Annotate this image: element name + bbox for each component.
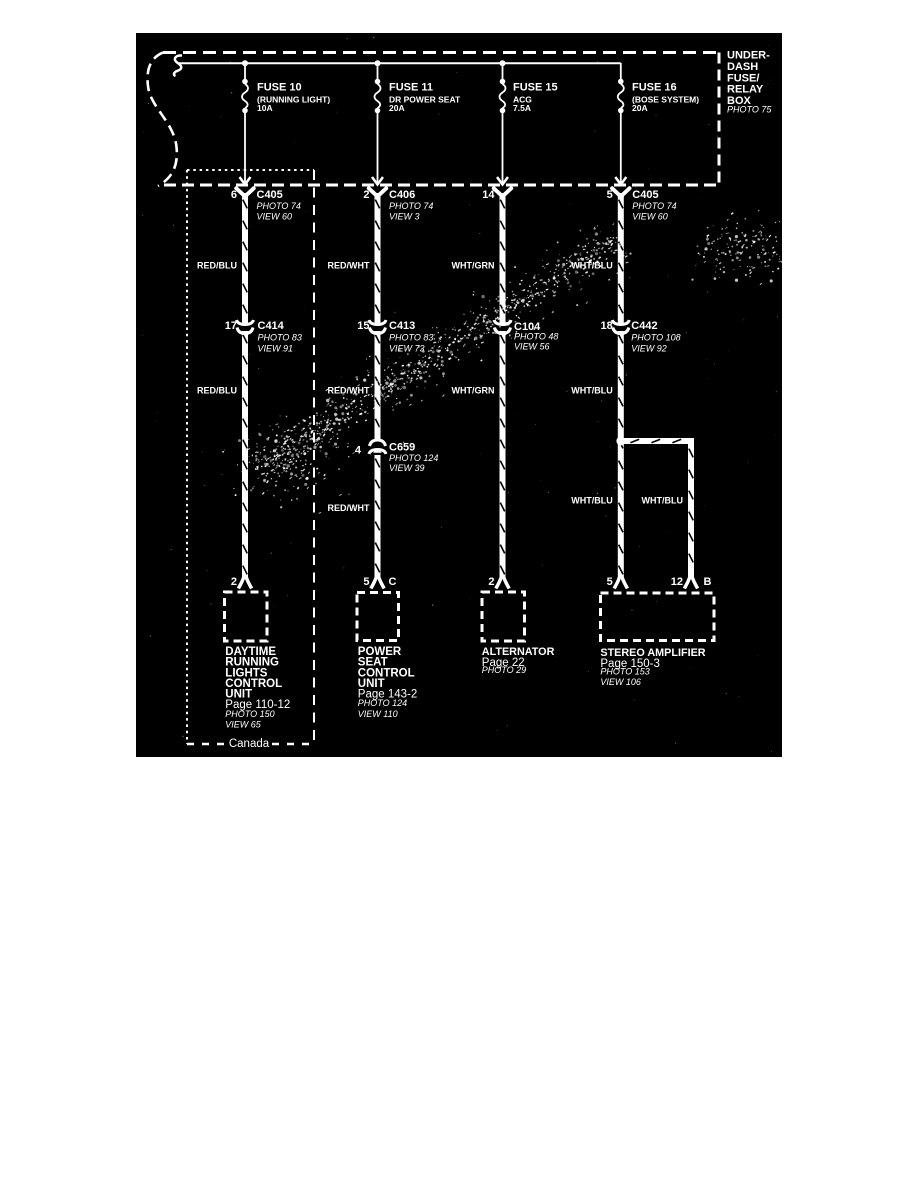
svg-text:PHOTO 83: PHOTO 83 (389, 332, 433, 342)
svg-text:VIEW 110: VIEW 110 (358, 709, 398, 719)
svg-text:2: 2 (488, 576, 494, 588)
svg-text:VIEW 60: VIEW 60 (257, 212, 293, 222)
svg-text:FUSE 10: FUSE 10 (257, 82, 302, 94)
svg-text:FUSE 15: FUSE 15 (513, 82, 558, 94)
svg-text:PHOTO 124: PHOTO 124 (358, 698, 407, 708)
svg-text:WHT/GRN: WHT/GRN (452, 261, 495, 271)
svg-text:VIEW 91: VIEW 91 (258, 343, 294, 353)
svg-text:Canada: Canada (229, 738, 270, 750)
svg-text:PHOTO 108: PHOTO 108 (631, 332, 680, 342)
svg-text:12: 12 (671, 576, 683, 588)
svg-text:WHT/GRN: WHT/GRN (452, 386, 495, 396)
svg-text:RED/WHT: RED/WHT (328, 261, 370, 271)
svg-text:C406: C406 (389, 189, 415, 201)
svg-text:PHOTO 150: PHOTO 150 (225, 709, 274, 719)
svg-text:18: 18 (601, 320, 613, 332)
svg-text:WHT/BLU: WHT/BLU (571, 386, 613, 396)
svg-text:C414: C414 (258, 320, 285, 332)
svg-text:VIEW 65: VIEW 65 (225, 719, 262, 729)
svg-text:RED/BLU: RED/BLU (197, 261, 237, 271)
svg-text:PHOTO 153: PHOTO 153 (600, 666, 649, 676)
svg-text:RED/BLU: RED/BLU (197, 386, 237, 396)
svg-text:20A: 20A (389, 103, 405, 113)
svg-text:15: 15 (357, 320, 369, 332)
svg-text:5: 5 (607, 576, 613, 588)
svg-text:RED/WHT: RED/WHT (328, 386, 370, 396)
svg-text:WHT/BLU: WHT/BLU (571, 261, 613, 271)
svg-text:10A: 10A (257, 103, 273, 113)
svg-text:5: 5 (363, 576, 369, 588)
svg-text:C: C (389, 576, 397, 588)
svg-text:WHT/BLU: WHT/BLU (571, 496, 613, 506)
svg-text:PHOTO 83: PHOTO 83 (258, 332, 302, 342)
svg-text:4: 4 (355, 445, 362, 457)
svg-text:FUSE 16: FUSE 16 (632, 82, 677, 94)
svg-text:17: 17 (225, 320, 237, 332)
svg-text:VIEW 3: VIEW 3 (389, 212, 420, 222)
svg-text:7.5A: 7.5A (513, 103, 531, 113)
svg-text:FUSE 11: FUSE 11 (389, 82, 433, 94)
svg-text:VIEW 92: VIEW 92 (631, 343, 667, 353)
svg-text:C405: C405 (632, 189, 658, 201)
svg-text:VIEW 106: VIEW 106 (600, 677, 641, 687)
svg-text:VIEW 73: VIEW 73 (389, 343, 425, 353)
svg-text:C659: C659 (389, 442, 415, 454)
svg-text:UNDER-: UNDER- (727, 50, 770, 62)
svg-text:6: 6 (231, 189, 237, 201)
svg-text:PHOTO 74: PHOTO 74 (632, 201, 676, 211)
svg-text:C405: C405 (257, 189, 283, 201)
svg-text:VIEW 56: VIEW 56 (514, 342, 550, 352)
svg-text:14: 14 (482, 189, 495, 201)
svg-text:DASH: DASH (727, 61, 758, 73)
svg-text:PHOTO 75: PHOTO 75 (727, 104, 772, 114)
svg-text:20A: 20A (632, 103, 648, 113)
svg-text:FUSE/: FUSE/ (727, 72, 759, 84)
svg-text:5: 5 (607, 189, 613, 201)
svg-text:B: B (704, 576, 712, 588)
svg-text:PHOTO 74: PHOTO 74 (389, 201, 433, 211)
svg-text:WHT/BLU: WHT/BLU (642, 496, 684, 506)
svg-text:RED/WHT: RED/WHT (328, 503, 370, 513)
svg-text:VIEW 60: VIEW 60 (632, 212, 668, 222)
svg-text:VIEW 39: VIEW 39 (389, 463, 425, 473)
svg-text:PHOTO 29: PHOTO 29 (482, 665, 526, 675)
svg-text:2: 2 (231, 576, 237, 588)
svg-text:PHOTO 74: PHOTO 74 (257, 201, 301, 211)
svg-text:C442: C442 (631, 320, 657, 332)
svg-text:PHOTO 124: PHOTO 124 (389, 453, 438, 463)
svg-text:2: 2 (363, 189, 369, 201)
svg-text:C413: C413 (389, 320, 415, 332)
svg-text:RELAY: RELAY (727, 84, 764, 96)
